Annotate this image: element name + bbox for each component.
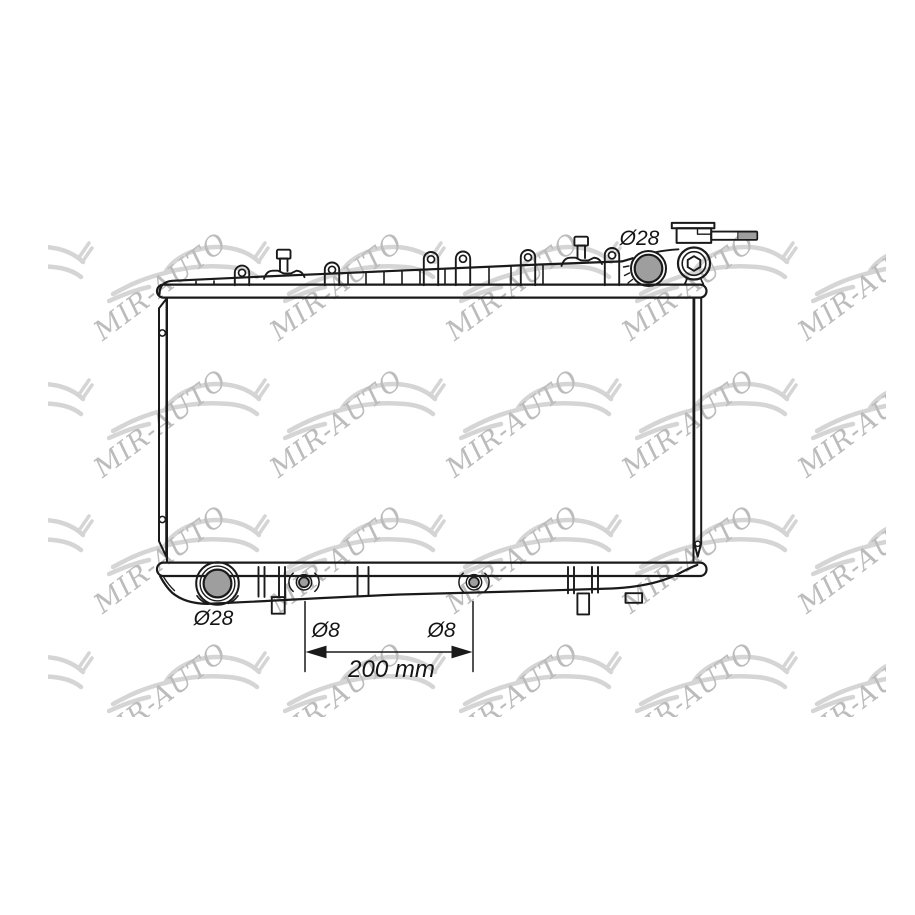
left-fitting-diameter-label: Ø8 bbox=[311, 619, 340, 642]
radiator-diagram: Ø28 Ø28 Ø8 Ø8 200 mm bbox=[0, 0, 915, 915]
top-inlet-diameter-label: Ø28 bbox=[619, 227, 660, 250]
dimension-arrow-left-icon bbox=[306, 646, 327, 659]
radiator-core bbox=[167, 298, 694, 563]
radiator-linework bbox=[157, 223, 757, 672]
dimension-arrow-right-icon bbox=[452, 646, 473, 659]
left-side-channel bbox=[159, 299, 167, 557]
right-side-channel bbox=[694, 299, 701, 557]
fitting-distance-label: 200 mm bbox=[347, 656, 435, 683]
top-inlet-pipe bbox=[624, 251, 667, 286]
bottom-outlet-diameter-label: Ø28 bbox=[193, 607, 234, 630]
overflow-tube bbox=[711, 232, 757, 240]
cap-hexagon-icon bbox=[688, 256, 701, 271]
bottom-tank bbox=[160, 565, 697, 615]
right-fitting-diameter-label: Ø8 bbox=[426, 619, 455, 642]
top-tank-flange bbox=[157, 285, 707, 298]
bottom-tank-flange bbox=[157, 563, 707, 576]
product-image: MIR-AUTOMIR-AUTOMIR-AUTOMIR-AUTOMIR-AUTO… bbox=[0, 0, 915, 915]
bottom-outlet-pipe bbox=[196, 562, 239, 605]
